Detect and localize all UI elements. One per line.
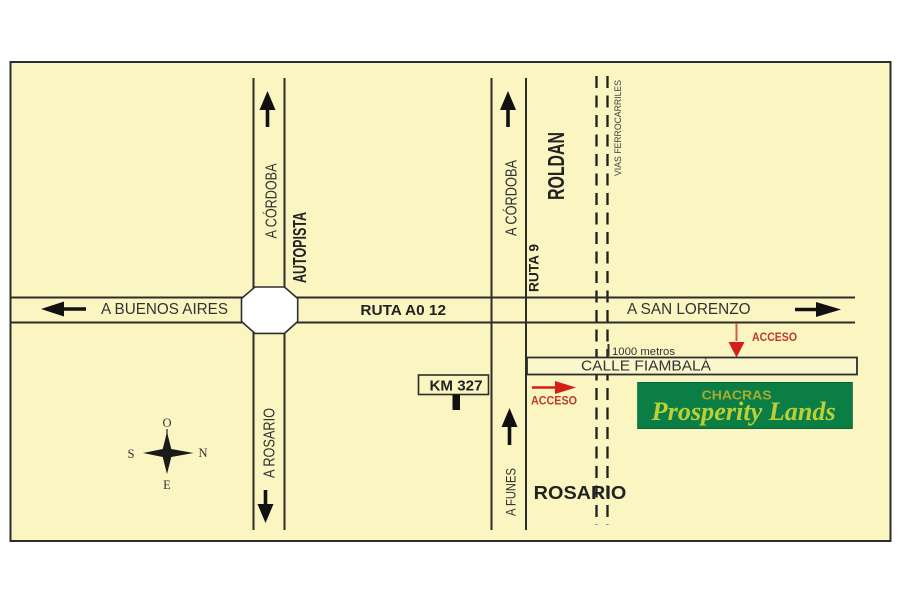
svg-text:Prosperity Lands: Prosperity Lands xyxy=(651,397,836,426)
svg-text:A BUENOS AIRES: A BUENOS AIRES xyxy=(101,301,228,318)
svg-text:1000 metros: 1000 metros xyxy=(612,346,676,358)
svg-text:A FUNES: A FUNES xyxy=(503,468,519,516)
svg-text:A SAN LORENZO: A SAN LORENZO xyxy=(627,301,751,318)
svg-text:O: O xyxy=(162,416,171,430)
svg-text:A CÓRDOBA: A CÓRDOBA xyxy=(264,163,281,239)
svg-text:N: N xyxy=(198,446,207,460)
svg-text:A ROSARIO: A ROSARIO xyxy=(262,408,279,478)
svg-text:CALLE FIAMBALÁ: CALLE FIAMBALÁ xyxy=(581,358,711,375)
svg-text:KM 327: KM 327 xyxy=(430,379,483,395)
svg-text:RUTA 9: RUTA 9 xyxy=(525,244,541,292)
svg-text:RUTA A0 12: RUTA A0 12 xyxy=(360,303,446,319)
svg-text:ROSARIO: ROSARIO xyxy=(534,483,627,503)
svg-text:VIAS FERROCARRILES: VIAS FERROCARRILES xyxy=(613,80,624,176)
svg-text:AUTOPISTA: AUTOPISTA xyxy=(290,212,310,283)
svg-text:ACCESO: ACCESO xyxy=(531,396,577,408)
svg-text:ROLDAN: ROLDAN xyxy=(543,132,569,200)
svg-text:A CÓRDOBA: A CÓRDOBA xyxy=(504,159,521,236)
svg-text:ACCESO: ACCESO xyxy=(752,332,797,344)
svg-text:E: E xyxy=(163,478,171,492)
svg-text:S: S xyxy=(128,447,135,461)
